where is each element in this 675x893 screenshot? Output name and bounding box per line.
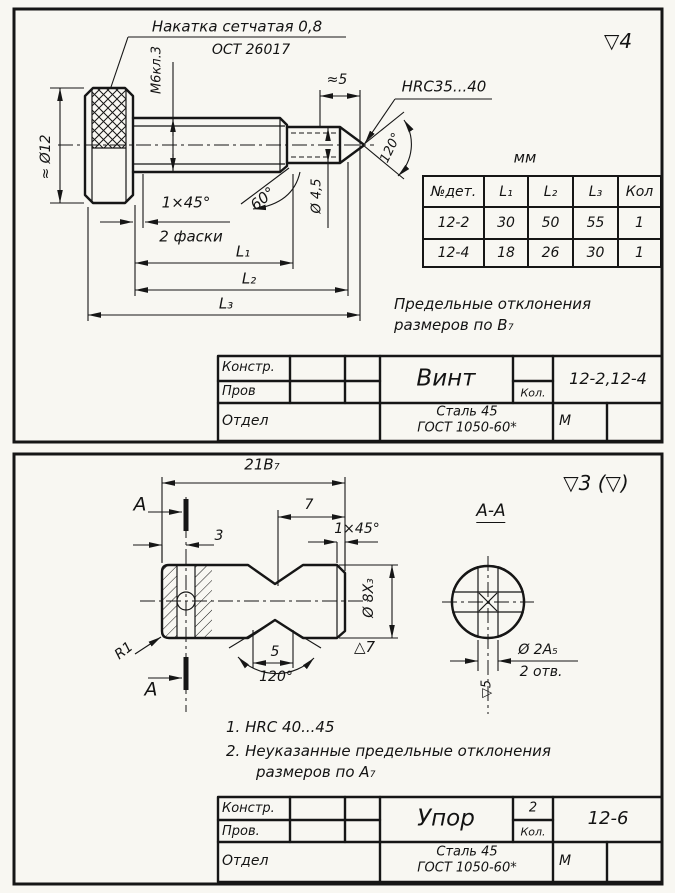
table-unit-label: мм [514, 151, 537, 166]
tolerance-note-line2: размеров по В₇ [394, 318, 514, 333]
table-header-cell: №дет. [423, 176, 484, 207]
tolerance-note-line1: Предельные отклонения [394, 297, 591, 312]
table-cell: 30 [573, 239, 618, 267]
l1-label: L₁ [236, 245, 250, 260]
section-arrow-label-top: А [134, 496, 147, 515]
tb-bot-part-number: 12-6 [588, 810, 629, 828]
tb-top-konstr: Констр. [222, 361, 275, 374]
table-cell: 18 [484, 239, 528, 267]
chamfer-note-label: 2 фаски [159, 230, 222, 245]
tb-bot-konstr: Констр. [222, 802, 275, 815]
tb-top-material-line2: ГОСТ 1050-60* [417, 422, 516, 435]
tip-diameter-label: Ø 4,5 [311, 178, 324, 213]
table-header-cell: L₂ [528, 176, 573, 207]
knurl-note-line1: Накатка сетчатая 0,8 [152, 20, 322, 35]
length-21-label: 21В₇ [244, 458, 279, 473]
tb-bot-prov: Пров. [222, 825, 260, 838]
section-arrow-label-bottom: А [145, 681, 158, 700]
table-header-cell: L₁ [484, 176, 528, 207]
tb-top-part-number: 12-2,12-4 [569, 371, 647, 387]
head-diameter-label: ≈ Ø12 [39, 134, 53, 179]
dim-7-label: 7 [305, 498, 314, 512]
note-line1: 1. HRC 40...45 [226, 720, 335, 735]
dia2-label: Ø 2А₅ [518, 643, 558, 657]
surface-finish-mark-bottom: ▽3 (▽) [563, 473, 628, 493]
table-cell: 1 [618, 207, 661, 239]
section-title: А-А [476, 503, 505, 523]
mark5-label: ▽5 [481, 680, 494, 698]
table-header-cell: Кол [618, 176, 661, 207]
table-cell: 12-4 [423, 239, 484, 267]
triangle7-mark: △7 [354, 640, 375, 655]
tip-length-label: ≈5 [327, 73, 348, 87]
tb-top-material-line1: Сталь 45 [436, 406, 497, 419]
dim-5-label: 5 [271, 645, 280, 659]
tb-bot-material-line2: ГОСТ 1050-60* [417, 862, 516, 875]
tb-top-prov: Пров [222, 385, 256, 398]
dim-3-label: 3 [215, 529, 224, 543]
dia8-label: Ø 8Х₃ [362, 578, 376, 618]
hardness-label: HRC35...40 [402, 80, 487, 95]
tb-bot-material-line1: Сталь 45 [436, 846, 497, 859]
tb-top-part-name: Винт [416, 368, 475, 391]
tb-bot-kol: Кол. [520, 827, 545, 838]
thread-label: М6кл.3 [151, 46, 164, 94]
chamfer-label: 1×45° [162, 196, 211, 211]
table-cell: 55 [573, 207, 618, 239]
tb-top-scale: М [559, 414, 571, 428]
table-header-cell: L₃ [573, 176, 618, 207]
l3-label: L₃ [219, 297, 233, 312]
drawing-sheet: Накатка сетчатая 0,8 ОСТ 26017 ▽4 ≈ Ø12 … [0, 0, 675, 893]
tb-bot-part-name: Упор [417, 808, 475, 831]
table-cell: 12-2 [423, 207, 484, 239]
table-cell: 50 [528, 207, 573, 239]
groove-angle-label: 120° [259, 670, 293, 684]
table-cell: 30 [484, 207, 528, 239]
tb-bot-kol-value: 2 [529, 802, 537, 815]
note-line3: размеров по А₇ [256, 765, 376, 780]
surface-finish-mark-top: ▽4 [604, 31, 632, 51]
tb-bot-otdel: Отдел [222, 854, 268, 868]
l2-label: L₂ [242, 272, 256, 287]
note-line2: 2. Неуказанные предельные отклонения [226, 744, 551, 759]
holes-count-label: 2 отв. [520, 665, 563, 679]
tb-bot-scale: М [559, 854, 571, 868]
tb-top-otdel: Отдел [222, 414, 268, 428]
section-a-a [442, 556, 578, 714]
table-cell: 1 [618, 239, 661, 267]
knurl-note-line2: ОСТ 26017 [212, 43, 290, 57]
screw-view [58, 88, 374, 203]
chamfer-bottom-label: 1×45° [334, 522, 379, 536]
parts-table: №дет. L₁ L₂ L₃ Кол 12-2 30 50 55 1 12-4 … [422, 175, 662, 268]
tb-top-kol: Кол. [520, 388, 545, 399]
table-cell: 26 [528, 239, 573, 267]
